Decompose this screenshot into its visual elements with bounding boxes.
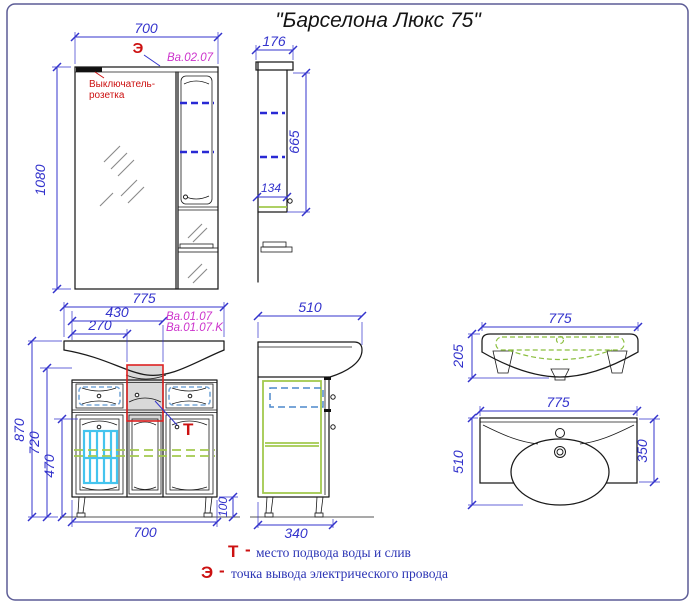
interior-shelf [265, 443, 319, 446]
vanity-body-height-dimension: 720 [26, 431, 42, 455]
water-point-symbol: Т [183, 420, 194, 439]
mirror-cabinet-front-view: 700 1080 Э Ba.02.07 Выключатель- розетка [32, 20, 222, 293]
mirror-door-knob [184, 195, 188, 199]
switch-socket-label-line2: розетка [89, 90, 125, 101]
basin-height-dimension: 205 [450, 344, 466, 369]
legend-electric-dash: - [219, 561, 225, 580]
mirror-cabinet-side-view: 176 134 665 [252, 33, 310, 282]
towel-bar-side [261, 242, 292, 252]
vanity-cabinet-width-dimension: 700 [133, 524, 157, 540]
vanity-side-view: 510 340 [250, 299, 374, 541]
washbasin-top-view: 775 510 350 [450, 394, 660, 509]
vanity-legs-front [77, 497, 212, 517]
vanity-270-dimension: 270 [87, 317, 112, 333]
basin-width-dimension: 775 [548, 310, 572, 326]
mirror-glass-hatch [100, 146, 144, 206]
service-level-lines [74, 450, 215, 456]
mirror-shelf-lines [180, 103, 214, 152]
legend-electric-symbol: Э [201, 563, 213, 582]
vanity-cabinet-depth-dimension: 340 [284, 525, 308, 541]
faucet-hole [556, 429, 565, 438]
vanity-door-height-dimension: 470 [41, 454, 57, 478]
switch-socket-block [76, 68, 102, 73]
mirror-height-dimension: 1080 [32, 164, 48, 195]
basin-top-width-dimension: 775 [546, 394, 570, 410]
vanity-total-depth-dimension: 510 [298, 299, 322, 315]
mirror-model-code: Ba.02.07 [167, 52, 214, 64]
electric-point-symbol: Э [133, 40, 144, 57]
drawing-title: "Барселона Люкс 75" [275, 9, 482, 32]
vanity-legs-side [265, 497, 323, 517]
washbasin-front-view: 775 205 [450, 310, 642, 382]
vanity-sink-width-dimension: 775 [132, 290, 156, 306]
towel-bar [178, 244, 218, 252]
drawing-sheet: "Барселона Люкс 75" 700 1080 Э Ba.02.07 … [0, 0, 695, 605]
basin-body-depth-dimension: 350 [634, 439, 650, 463]
mirror-depth-dimension: 176 [262, 33, 286, 49]
legend-water-text: место подвода воды и слив [256, 545, 411, 560]
mirror-shelf-depth-dimension: 134 [261, 181, 281, 195]
switch-socket-label-line1: Выключатель- [89, 79, 155, 90]
vanity-model-code-2: Ba.01.07.K [166, 322, 224, 334]
vanity-total-height-dimension: 870 [11, 418, 27, 442]
drain-outlet [551, 369, 569, 380]
vanity-front-view: 775 430 270 Ba.01.07 Ba.01.07.K 870 720 … [11, 290, 240, 540]
laundry-basket [84, 431, 117, 483]
electric-leader-line [144, 55, 160, 66]
basin-total-depth-dimension: 510 [450, 450, 466, 474]
legend: Т - место подвода воды и слив Э - точка … [201, 540, 448, 582]
legend-water-symbol: Т [228, 542, 239, 561]
legend-electric-text: точка вывода электрического провода [231, 566, 448, 581]
basin-rim-hidden [496, 337, 624, 360]
drawer-hidden-outline [270, 388, 323, 407]
mirror-body-height-dimension: 665 [286, 130, 302, 154]
interior-outline [263, 381, 321, 493]
legend-water-dash: - [245, 540, 251, 559]
vanity-leg-height-dimension: 100 [216, 497, 230, 517]
mirror-width-dimension: 700 [134, 20, 158, 36]
